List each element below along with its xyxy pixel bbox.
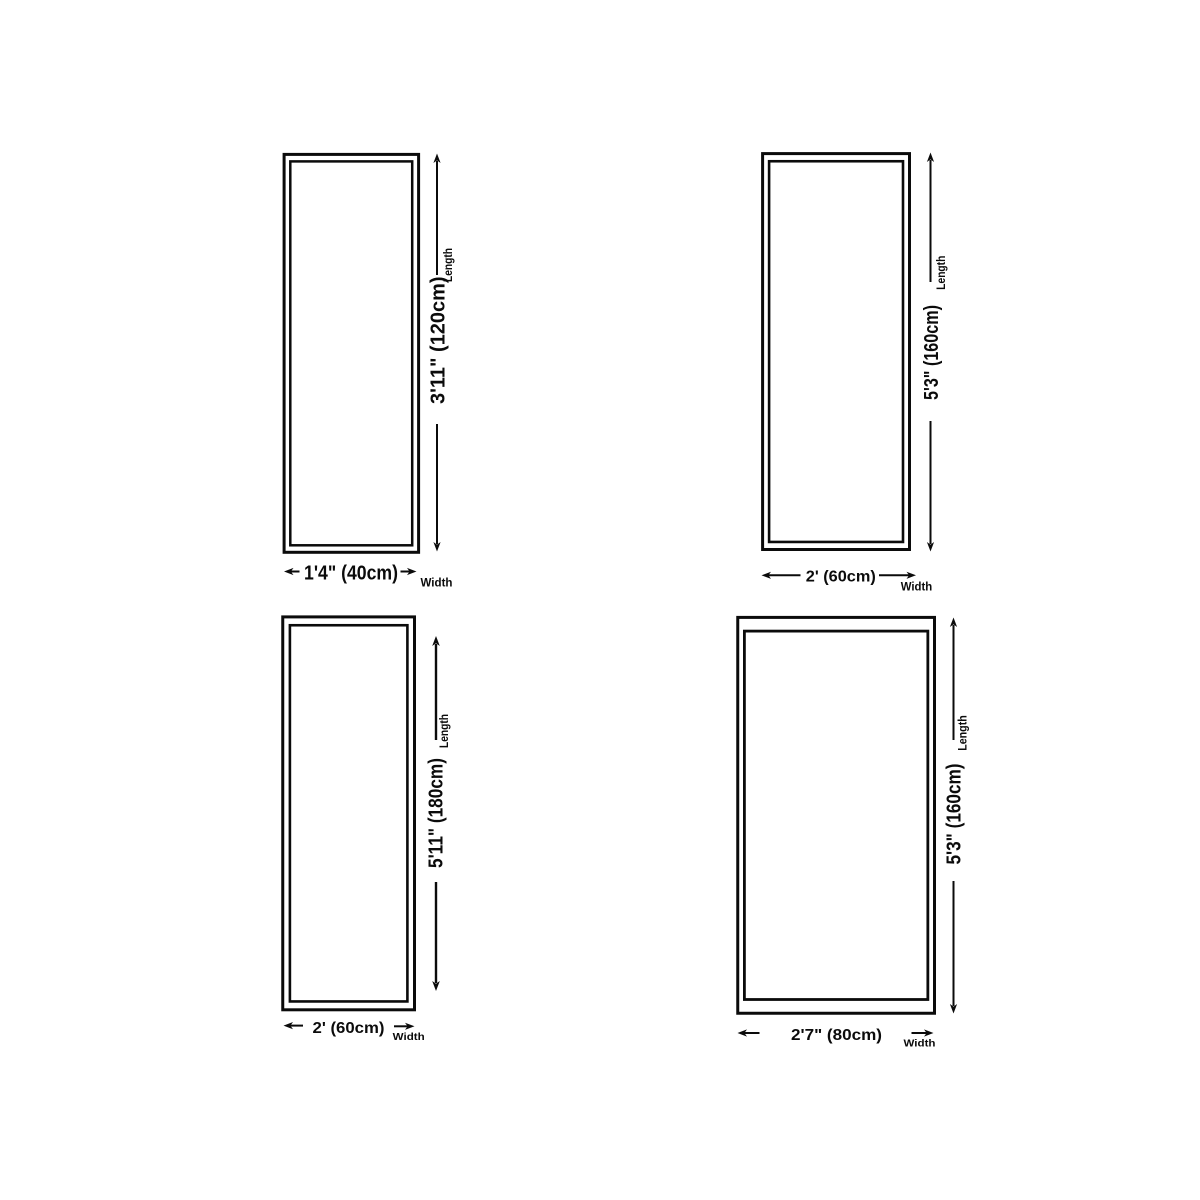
svg-text:2' (60cm): 2' (60cm) xyxy=(313,1020,385,1037)
svg-text:3'11" (120cm): 3'11" (120cm) xyxy=(428,276,450,404)
svg-text:Length: Length xyxy=(443,248,455,282)
svg-text:Length: Length xyxy=(958,715,970,751)
svg-text:Width: Width xyxy=(421,577,453,589)
svg-text:Width: Width xyxy=(904,1039,936,1050)
svg-text:2' (60cm): 2' (60cm) xyxy=(806,569,876,586)
svg-text:5'3" (160cm): 5'3" (160cm) xyxy=(921,305,943,400)
svg-text:Length: Length xyxy=(936,256,948,290)
svg-text:5'3" (160cm): 5'3" (160cm) xyxy=(943,764,966,865)
svg-text:5'11" (180cm): 5'11" (180cm) xyxy=(426,758,448,868)
svg-text:Width: Width xyxy=(393,1031,425,1043)
svg-text:1'4" (40cm): 1'4" (40cm) xyxy=(304,563,398,585)
svg-text:2'7" (80cm): 2'7" (80cm) xyxy=(791,1027,882,1044)
svg-text:Length: Length xyxy=(439,714,451,748)
svg-text:Width: Width xyxy=(901,582,933,594)
